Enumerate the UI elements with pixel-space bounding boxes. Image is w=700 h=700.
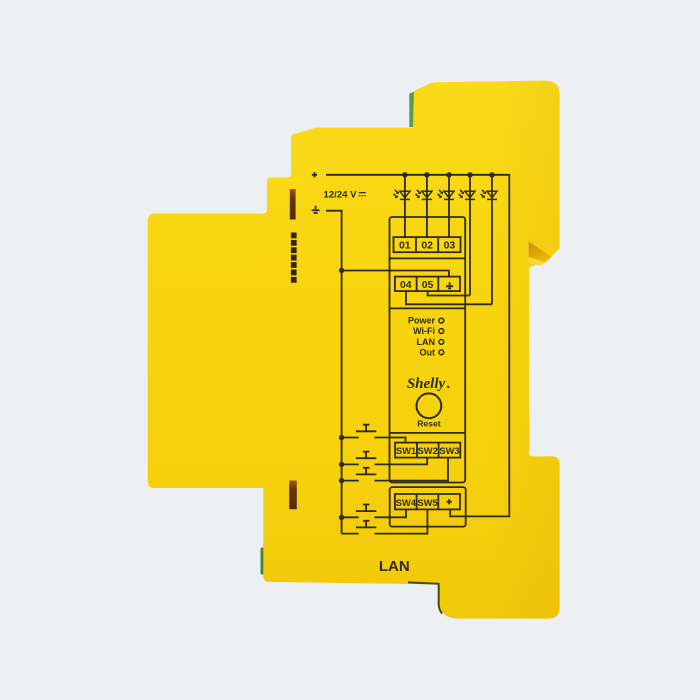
svg-text:12/24 V: 12/24 V bbox=[324, 190, 358, 201]
svg-text:Shelly: Shelly bbox=[407, 376, 446, 392]
svg-text:SW4: SW4 bbox=[396, 497, 417, 508]
svg-text:Out: Out bbox=[420, 347, 436, 357]
svg-text:05: 05 bbox=[422, 280, 434, 291]
svg-text:LAN: LAN bbox=[417, 337, 436, 347]
svg-text:02: 02 bbox=[421, 241, 433, 252]
svg-text:SW1: SW1 bbox=[396, 445, 416, 456]
svg-text:LAN: LAN bbox=[379, 558, 410, 575]
svg-text:SW3: SW3 bbox=[439, 445, 459, 456]
svg-text:Power: Power bbox=[408, 316, 436, 326]
svg-text:03: 03 bbox=[444, 241, 456, 252]
svg-text:01: 01 bbox=[399, 241, 411, 252]
svg-text:SW2: SW2 bbox=[418, 445, 438, 456]
svg-text:Wi-Fi: Wi-Fi bbox=[413, 326, 435, 336]
svg-text:SW5: SW5 bbox=[417, 497, 437, 508]
svg-text:Reset: Reset bbox=[417, 419, 441, 429]
svg-text:04: 04 bbox=[400, 280, 412, 291]
